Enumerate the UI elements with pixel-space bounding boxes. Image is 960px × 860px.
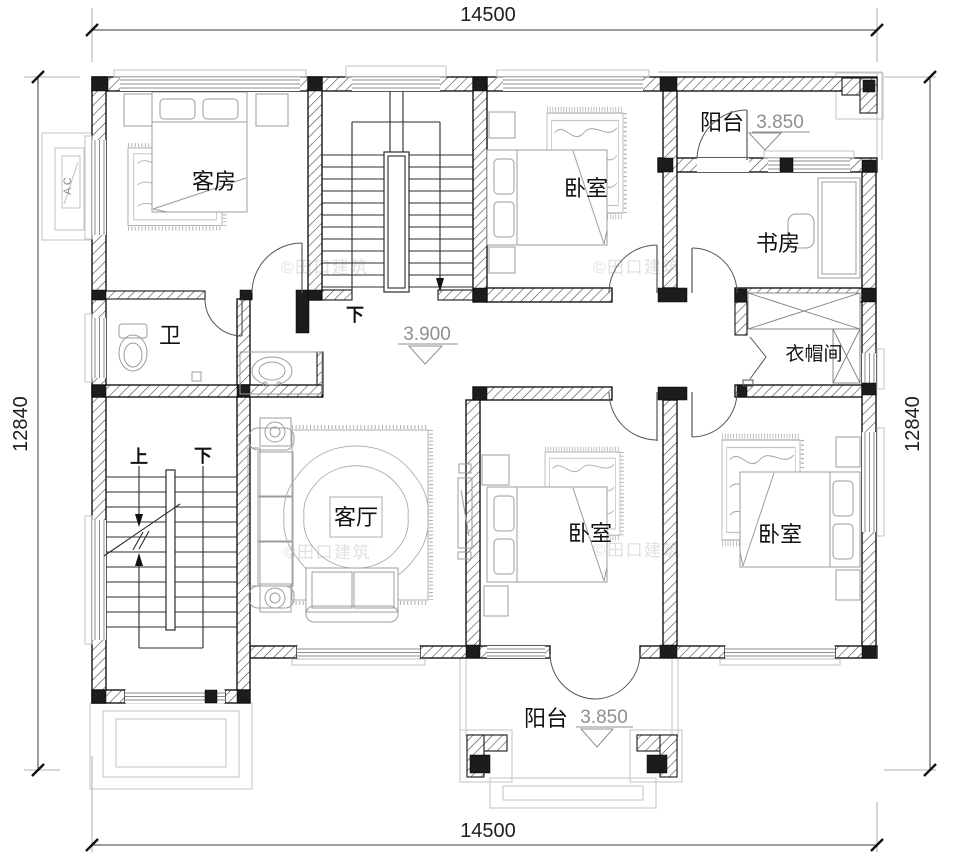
label-study: 书房 (756, 231, 800, 256)
watermark: ©田口建筑 (281, 258, 369, 277)
balcony-bottom-annotation: 阳台 3.850 (524, 706, 633, 747)
label-cloakroom: 衣帽间 (785, 343, 842, 365)
guest-bed (152, 92, 247, 212)
room-bedroom-top: 卧室 (487, 109, 625, 273)
balcony-column-left (467, 735, 507, 777)
dimension-right: 12840 (884, 71, 936, 776)
dimension-top: 14500 (86, 4, 883, 62)
label-balcony-top: 阳台 (700, 110, 744, 135)
floor-plan-canvas: 14500 14500 12840 12840 (0, 0, 960, 860)
dim-bottom-label: 14500 (460, 820, 516, 842)
dim-top-label: 14500 (460, 4, 516, 26)
room-living: 客厅 (248, 418, 472, 622)
level-balcony-top: 3.850 (756, 112, 804, 133)
balcony-top-annotation: 阳台 3.850 (700, 110, 810, 150)
label-bedroom-top: 卧室 (564, 176, 608, 201)
coffee-sofa (306, 568, 398, 622)
room-study: 书房 (756, 178, 860, 278)
watermark: ©田口建筑 (283, 543, 371, 562)
toilet (119, 324, 147, 371)
watermark: ©田口建筑 (593, 258, 681, 277)
label-stairs-up: 上 (130, 447, 148, 467)
room-bathroom: 卫 (119, 323, 322, 394)
label-stairs-top-down: 下 (346, 305, 364, 325)
label-guest-room: 客房 (192, 169, 236, 194)
level-hall: 3.900 (403, 324, 451, 345)
room-bedroom-mid: 卧室 (482, 449, 622, 616)
bedroom-right-bed (740, 472, 860, 567)
label-living-room: 客厅 (334, 505, 378, 530)
label-stairs-down: 下 (194, 446, 212, 466)
balcony-bottom (460, 658, 682, 808)
label-bedroom-right: 卧室 (758, 522, 802, 547)
balcony-column-right (637, 735, 677, 777)
bifold-door (750, 337, 766, 379)
label-bathroom: 卫 (159, 323, 181, 348)
porch (90, 703, 252, 789)
room-cloakroom: 衣帽间 (748, 293, 860, 383)
sofa (248, 418, 294, 612)
dimension-left: 12840 (10, 71, 80, 776)
stairs-bottom: 上 下 (104, 446, 237, 648)
ac-label: A C (62, 177, 74, 195)
watermark: ©田口建筑 (593, 541, 681, 560)
dim-left-label: 12840 (10, 396, 32, 452)
label-balcony-bottom: 阳台 (524, 706, 568, 731)
level-balcony-bottom: 3.850 (580, 707, 628, 728)
room-guest: 客房 (124, 92, 288, 229)
dim-right-label: 12840 (902, 396, 924, 452)
hall-annotation: 3.900 (398, 324, 458, 364)
room-bedroom-right: 卧室 (722, 436, 860, 600)
